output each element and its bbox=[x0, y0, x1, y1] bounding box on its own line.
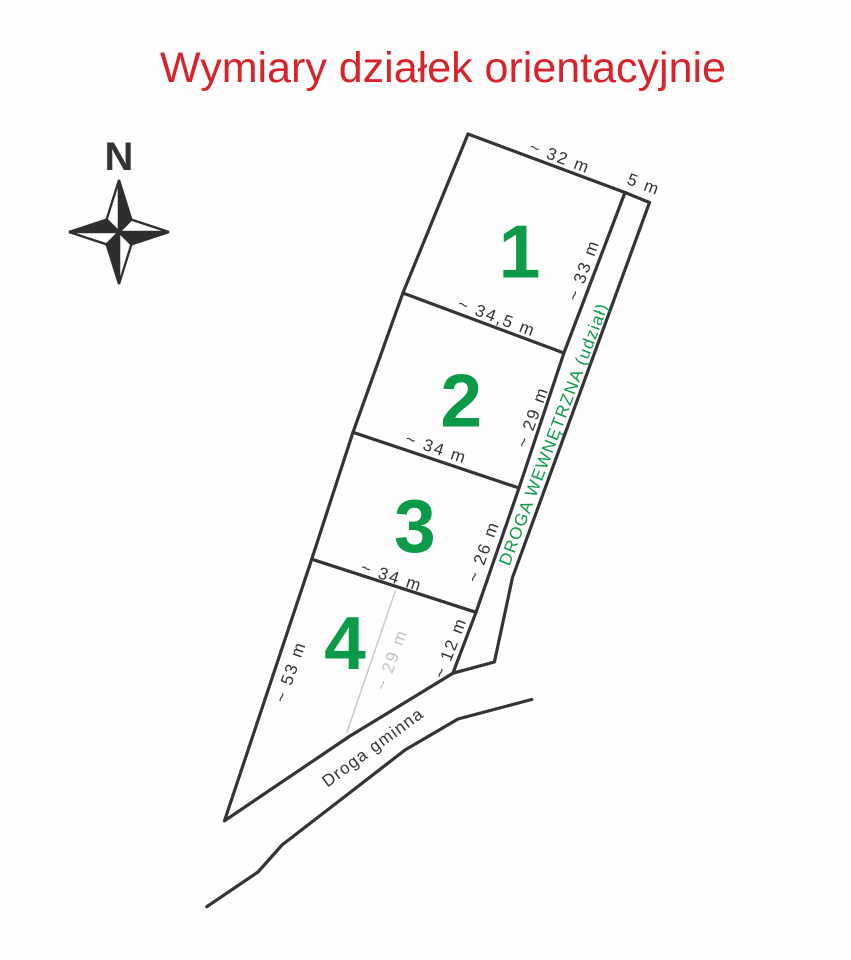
svg-text:2: 2 bbox=[440, 359, 482, 443]
svg-text:1: 1 bbox=[499, 209, 541, 293]
svg-text:N: N bbox=[105, 135, 134, 179]
svg-text:4: 4 bbox=[324, 601, 366, 685]
svg-text:3: 3 bbox=[394, 484, 436, 568]
svg-text:Wymiary działek orientacyjnie: Wymiary działek orientacyjnie bbox=[160, 44, 726, 92]
